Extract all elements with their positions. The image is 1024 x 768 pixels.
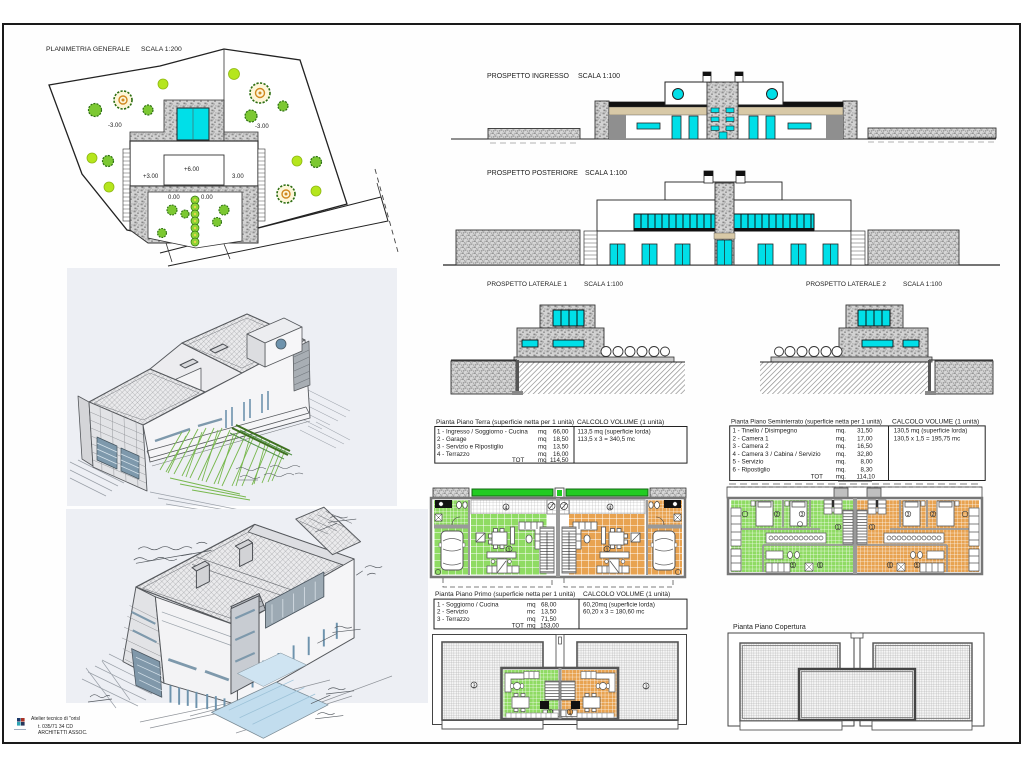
svg-text:ARCHITETTI ASSOC.: ARCHITETTI ASSOC. <box>38 730 87 736</box>
svg-text:SCALA 1:100: SCALA 1:100 <box>585 170 627 177</box>
svg-text:32,80: 32,80 <box>857 451 873 458</box>
svg-text:2 - Garage: 2 - Garage <box>437 436 467 443</box>
svg-text:+3.00: +3.00 <box>143 174 159 180</box>
svg-text:3.00: 3.00 <box>232 174 244 180</box>
svg-text:5: 5 <box>792 563 795 569</box>
svg-text:mq: mq <box>527 601 536 608</box>
svg-text:1: 1 <box>871 525 874 531</box>
svg-text:SCALA 1:100: SCALA 1:100 <box>903 281 942 288</box>
svg-text:PROSPETTO INGRESSO: PROSPETTO INGRESSO <box>487 73 569 80</box>
svg-text:60,20mq (superficie lorda): 60,20mq (superficie lorda) <box>583 601 655 608</box>
svg-text:PROSPETTO LATERALE 2: PROSPETTO LATERALE 2 <box>806 281 886 288</box>
svg-text:mq.: mq. <box>836 443 847 450</box>
svg-text:4: 4 <box>608 505 611 511</box>
svg-text:13,50: 13,50 <box>553 444 569 451</box>
svg-text:SCALA 1:100: SCALA 1:100 <box>578 73 620 80</box>
svg-text:5 - Servizio: 5 - Servizio <box>733 459 765 466</box>
svg-text:3: 3 <box>907 512 910 518</box>
svg-text:-3.00: -3.00 <box>108 123 122 129</box>
svg-text:1: 1 <box>569 710 572 716</box>
svg-text:4 - Terrazzo: 4 - Terrazzo <box>437 451 470 458</box>
svg-text:Atelier tecnico di "orisl: Atelier tecnico di "orisl <box>31 716 80 722</box>
svg-text:2: 2 <box>776 512 779 518</box>
svg-text:3: 3 <box>801 512 804 518</box>
svg-text:-3.00: -3.00 <box>255 124 269 130</box>
svg-text:3: 3 <box>644 684 647 690</box>
svg-text:SCALA 1:100: SCALA 1:100 <box>584 281 623 288</box>
svg-text:6: 6 <box>819 563 822 569</box>
svg-text:130,5 x 1,5 = 195,75 mc: 130,5 x 1,5 = 195,75 mc <box>894 435 961 442</box>
svg-text:PROSPETTO POSTERIORE: PROSPETTO POSTERIORE <box>487 170 578 177</box>
svg-text:CALCOLO VOLUME (1 unità): CALCOLO VOLUME (1 unità) <box>577 419 664 426</box>
svg-text:2: 2 <box>932 512 935 518</box>
svg-text:CALCOLO VOLUME (1 unità): CALCOLO VOLUME (1 unità) <box>892 419 979 426</box>
svg-text:TOT: TOT <box>811 473 823 480</box>
svg-text:153,00: 153,00 <box>540 623 559 630</box>
svg-text:114,10: 114,10 <box>857 473 876 480</box>
svg-text:mq: mq <box>527 623 536 630</box>
svg-text:113,5 mq (superficie lorda): 113,5 mq (superficie lorda) <box>578 429 651 436</box>
svg-text:mq: mq <box>538 444 547 451</box>
svg-text:130,5 mq (superficie lorda): 130,5 mq (superficie lorda) <box>894 428 968 435</box>
svg-text:2 - Servizio: 2 - Servizio <box>437 609 469 616</box>
svg-text:TOT: TOT <box>512 457 524 464</box>
svg-text:1: 1 <box>837 525 840 531</box>
svg-text:PLANIMETRIA GENERALE: PLANIMETRIA GENERALE <box>46 46 130 53</box>
svg-text:1 - Ingresso / Soggiorno - Cuc: 1 - Ingresso / Soggiorno - Cucina <box>437 429 528 436</box>
svg-text:mq.: mq. <box>836 473 847 480</box>
svg-text:13,50: 13,50 <box>541 609 557 616</box>
svg-text:SCALA 1:200: SCALA 1:200 <box>141 46 182 53</box>
svg-text:Pianta Piano Seminterrato (sup: Pianta Piano Seminterrato (superficie ne… <box>731 419 882 426</box>
svg-text:mq.: mq. <box>836 428 847 435</box>
svg-text:60,20 x 3 = 180,60 mc: 60,20 x 3 = 180,60 mc <box>583 609 644 616</box>
svg-text:mq: mq <box>538 436 547 443</box>
svg-text:TOT: TOT <box>512 623 524 630</box>
svg-text:114,50: 114,50 <box>550 457 569 464</box>
svg-text:3: 3 <box>472 683 475 689</box>
svg-text:PROSPETTO LATERALE 1: PROSPETTO LATERALE 1 <box>487 281 567 288</box>
svg-text:6: 6 <box>889 563 892 569</box>
svg-text:31,50: 31,50 <box>857 428 873 435</box>
svg-text:Pianta Piano Terra (superficie: Pianta Piano Terra (superficie netta per… <box>436 419 574 426</box>
svg-text:0.00: 0.00 <box>168 195 180 201</box>
svg-text:mq.: mq. <box>836 451 847 458</box>
svg-text:5: 5 <box>916 563 919 569</box>
svg-text:mq.: mq. <box>836 459 847 466</box>
svg-text:+6.00: +6.00 <box>184 167 200 173</box>
svg-text:mq.: mq. <box>836 435 847 442</box>
svg-text:68,00: 68,00 <box>541 601 557 608</box>
svg-text:3 - Servizio e Ripostiglio: 3 - Servizio e Ripostiglio <box>437 444 504 451</box>
svg-text:1 - Soggiorno / Cucina: 1 - Soggiorno / Cucina <box>437 601 499 608</box>
svg-text:113,5 x 3 = 340,5 mc: 113,5 x 3 = 340,5 mc <box>578 436 636 443</box>
svg-text:0.00: 0.00 <box>201 195 213 201</box>
svg-text:17,00: 17,00 <box>857 435 873 442</box>
svg-text:mc: mc <box>527 609 535 616</box>
svg-text:66,00: 66,00 <box>553 429 569 436</box>
svg-text:4: 4 <box>504 505 507 511</box>
svg-text:Pianta Piano Copertura: Pianta Piano Copertura <box>733 624 806 631</box>
svg-text:mq: mq <box>538 429 547 436</box>
svg-text:16,50: 16,50 <box>857 443 873 450</box>
svg-text:3 - Terrazzo: 3 - Terrazzo <box>437 616 470 623</box>
svg-text:8,00: 8,00 <box>861 459 874 466</box>
svg-text:6 - Ripostiglio: 6 - Ripostiglio <box>733 467 771 474</box>
svg-text:Pianta Piano Primo (superficie: Pianta Piano Primo (superficie netta per… <box>435 591 575 598</box>
svg-text:4 - Camera 3 / Cabina / Serviz: 4 - Camera 3 / Cabina / Servizio <box>733 451 822 458</box>
svg-text:mq: mq <box>538 457 547 464</box>
svg-text:CALCOLO VOLUME (1 unità): CALCOLO VOLUME (1 unità) <box>583 591 670 598</box>
svg-text:1 - Tinello / Disimpegno: 1 - Tinello / Disimpegno <box>733 428 798 435</box>
svg-text:2 - Camera 1: 2 - Camera 1 <box>733 435 770 442</box>
svg-text:3 - Camera 2: 3 - Camera 2 <box>733 443 770 450</box>
svg-text:18,50: 18,50 <box>553 436 569 443</box>
